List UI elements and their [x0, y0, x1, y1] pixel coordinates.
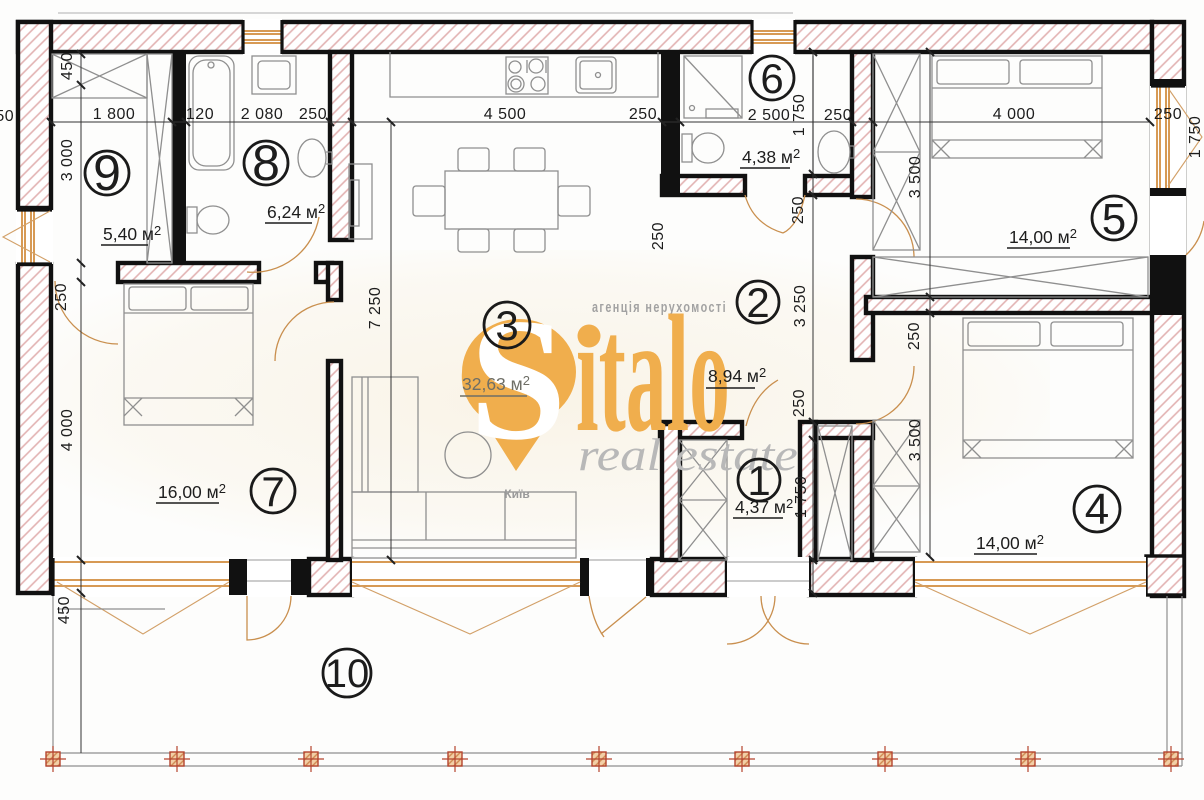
svg-text:4 000: 4 000 — [993, 106, 1036, 123]
svg-text:250: 250 — [790, 196, 807, 224]
svg-text:5: 5 — [1102, 195, 1126, 244]
svg-text:450: 450 — [0, 108, 14, 125]
svg-text:3 250: 3 250 — [792, 285, 809, 328]
svg-text:9: 9 — [93, 145, 121, 201]
svg-text:2 500: 2 500 — [748, 107, 791, 124]
svg-text:14,00 м2: 14,00 м2 — [976, 532, 1044, 553]
svg-text:3 000: 3 000 — [59, 139, 76, 182]
svg-text:4: 4 — [1085, 485, 1109, 534]
svg-text:8: 8 — [252, 135, 280, 191]
svg-text:1: 1 — [747, 457, 770, 504]
svg-text:14,00 м2: 14,00 м2 — [1009, 226, 1077, 247]
svg-text:4 000: 4 000 — [59, 409, 76, 452]
svg-text:250: 250 — [629, 106, 657, 123]
svg-text:250: 250 — [53, 283, 70, 311]
svg-text:250: 250 — [650, 222, 667, 250]
svg-text:450: 450 — [56, 596, 73, 624]
svg-text:4 500: 4 500 — [484, 106, 527, 123]
svg-text:10: 10 — [325, 652, 370, 696]
svg-text:1 800: 1 800 — [93, 106, 136, 123]
svg-text:250: 250 — [299, 106, 327, 123]
svg-text:4,38 м2: 4,38 м2 — [742, 146, 800, 167]
svg-text:250: 250 — [824, 107, 852, 124]
svg-text:250: 250 — [906, 322, 923, 350]
svg-text:120: 120 — [186, 106, 214, 123]
svg-text:2 080: 2 080 — [241, 106, 284, 123]
svg-text:6,24 м2: 6,24 м2 — [267, 201, 325, 222]
svg-text:250: 250 — [1154, 106, 1182, 123]
svg-text:Київ: Київ — [504, 487, 529, 501]
svg-text:3 500: 3 500 — [907, 419, 924, 462]
svg-text:7: 7 — [261, 468, 284, 515]
svg-text:16,00 м2: 16,00 м2 — [158, 481, 226, 502]
svg-text:1 750: 1 750 — [1187, 116, 1204, 159]
svg-text:8,94 м2: 8,94 м2 — [708, 365, 766, 386]
svg-text:5,40 м2: 5,40 м2 — [103, 223, 161, 244]
svg-text:32,63 м2: 32,63 м2 — [462, 373, 530, 394]
svg-text:450: 450 — [59, 52, 76, 80]
svg-text:3: 3 — [495, 302, 518, 349]
svg-text:2: 2 — [746, 279, 769, 326]
svg-text:6: 6 — [760, 55, 783, 102]
svg-text:7 250: 7 250 — [367, 287, 384, 330]
svg-text:1 750: 1 750 — [793, 476, 810, 519]
svg-text:1 750: 1 750 — [791, 94, 808, 137]
svg-text:3 500: 3 500 — [907, 156, 924, 199]
svg-text:250: 250 — [791, 389, 808, 417]
